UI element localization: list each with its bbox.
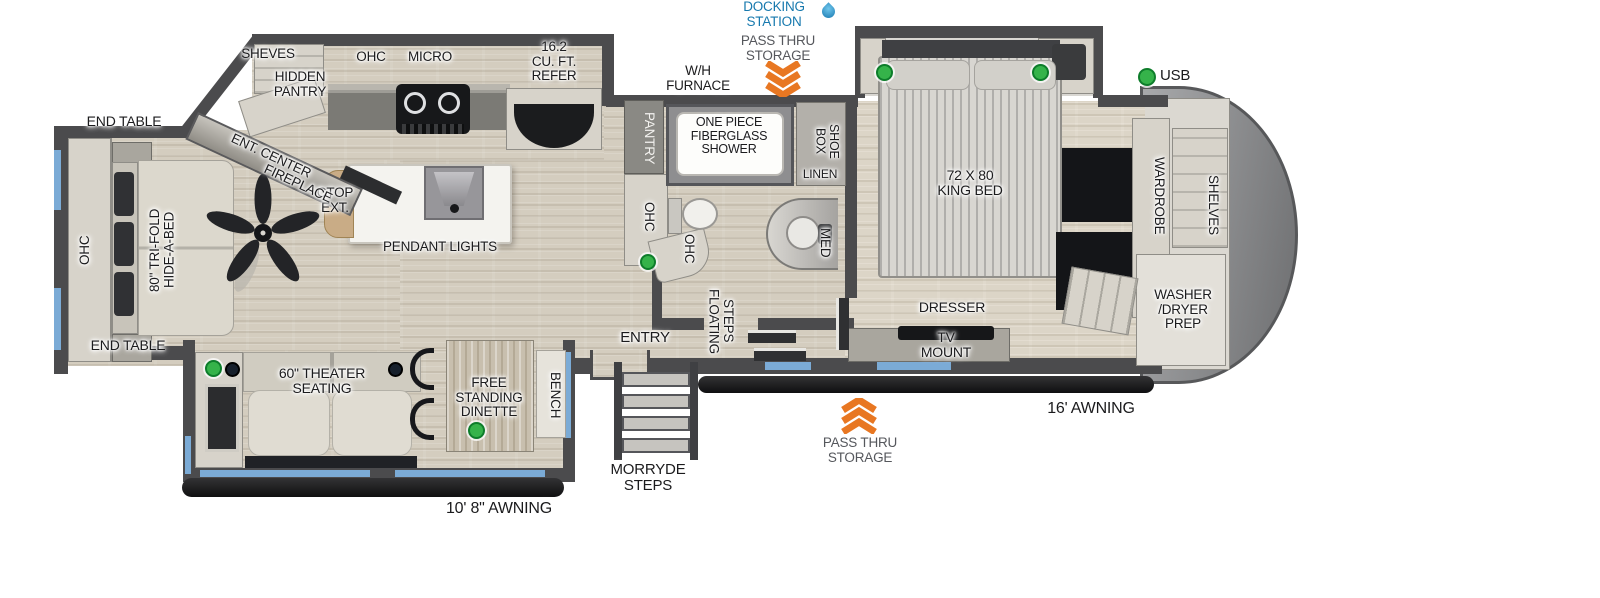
ohc-counter-label: OHC [634, 188, 656, 246]
window-strip [765, 362, 811, 370]
window-strip [395, 470, 545, 477]
pass-thru-storage-top-label: PASS THRU STORAGE [732, 34, 824, 63]
wardrobe-opening [1062, 148, 1132, 222]
window-strip [54, 150, 61, 210]
stove-burner-icon [404, 92, 426, 114]
end-table-bottom-label: END TABLE [80, 338, 176, 353]
usb-port-indicator [876, 64, 893, 81]
window-strip [185, 436, 191, 474]
theater-seating-label: 60" THEATER SEATING [262, 366, 382, 396]
pass-thru-arrow-down-icon [764, 61, 802, 97]
step-tread [836, 298, 849, 350]
cupholder-indicator [388, 362, 403, 377]
sofa-pillow [114, 222, 134, 266]
tv-mount-label: TV MOUNT [880, 330, 1012, 360]
stove-burner-icon [438, 92, 460, 114]
cupholder-indicator [225, 362, 240, 377]
morryde-step-tread [622, 394, 690, 409]
usb-label: USB [1160, 68, 1204, 84]
shower-label: ONE PIECE FIBERGLASS SHOWER [676, 116, 782, 157]
king-bed-label: 72 X 80 KING BED [912, 168, 1028, 198]
sheves-label: SHEVES [226, 47, 310, 62]
dresser-label: DRESSER [896, 300, 1008, 315]
theater-seat-cushion [332, 390, 412, 456]
usb-port-indicator [640, 254, 656, 270]
hidden-pantry-label: HIDDEN PANTRY [252, 70, 348, 99]
washer-dryer-label: WASHER /DRYER PREP [1138, 288, 1228, 332]
refer-label: 16.2 CU. FT. REFER [512, 40, 596, 84]
pantry-label: PANTRY [632, 106, 656, 170]
linen-label: LINEN [792, 168, 848, 181]
bed-headboard [882, 40, 1060, 58]
micro-label: MICRO [400, 50, 460, 65]
bedroom-corner-seat-cushion [1052, 44, 1086, 80]
pass-thru-arrow-up-icon [840, 398, 878, 434]
morryde-steps-label: MORRYDE STEPS [592, 462, 704, 494]
wall [1093, 26, 1103, 98]
ohc-kitchen-label: OHC [348, 50, 394, 65]
dinette-label: FREE STANDING DINETTE [438, 376, 540, 420]
morryde-step-rail [690, 362, 698, 460]
awning-10-8-label: 10' 8" AWNING [424, 500, 574, 517]
morryde-step-tread [622, 416, 690, 431]
ohc-counter2-label: OHC [674, 224, 696, 274]
awning-bar-main [698, 376, 1154, 393]
step-tread [754, 348, 806, 361]
wall [1098, 95, 1168, 107]
theater-end-opening [205, 384, 239, 452]
morryde-step-tread [622, 438, 690, 453]
shoe-box-label: SHOE BOX [802, 106, 840, 176]
window-strip [877, 362, 951, 370]
morryde-step-rail [614, 362, 622, 460]
theater-seat-cushion [248, 390, 330, 456]
pass-thru-storage-bottom-label: PASS THRU STORAGE [812, 436, 908, 465]
awning-16-label: 16' AWNING [1036, 400, 1146, 417]
island-faucet [450, 204, 459, 213]
wall [845, 102, 857, 298]
window-strip [54, 288, 61, 350]
wall [855, 26, 1103, 38]
sofa-label: 80" TRI-FOLD HIDE-A-BED [148, 184, 200, 316]
end-table-top-label: END TABLE [76, 114, 172, 132]
morryde-step-tread [622, 372, 690, 387]
floorplan-canvas: DOCKING STATION PASS THRU STORAGE W/H FU… [0, 0, 1600, 598]
bed-pillow [886, 60, 970, 90]
ohc-rear-label: OHC [78, 210, 104, 290]
shelves-label: SHELVES [1196, 162, 1220, 248]
usb-port-indicator [205, 360, 222, 377]
bench-label: BENCH [538, 360, 562, 430]
entry-label: ENTRY [606, 330, 684, 346]
theater-base [245, 456, 417, 468]
pendant-lights-label: PENDANT LIGHTS [370, 240, 510, 255]
usb-legend-dot [1138, 68, 1156, 86]
step-tread [748, 330, 796, 343]
wardrobe-label: WARDROBE [1142, 146, 1166, 246]
med-label: MED [810, 212, 832, 274]
usb-port-indicator [468, 422, 485, 439]
stove-vent [402, 124, 464, 134]
awning-bar-door-side [182, 478, 564, 497]
sofa-pillow [114, 172, 134, 216]
wh-furnace-label: W/H FURNACE [648, 64, 748, 93]
window-strip [200, 470, 370, 477]
docking-station-label: DOCKING STATION [724, 0, 824, 29]
usb-port-indicator [1032, 64, 1049, 81]
floating-steps-label: FLOATING STEPS [706, 276, 746, 366]
sofa-pillow [114, 272, 134, 316]
bedroom-steps [1061, 267, 1138, 336]
